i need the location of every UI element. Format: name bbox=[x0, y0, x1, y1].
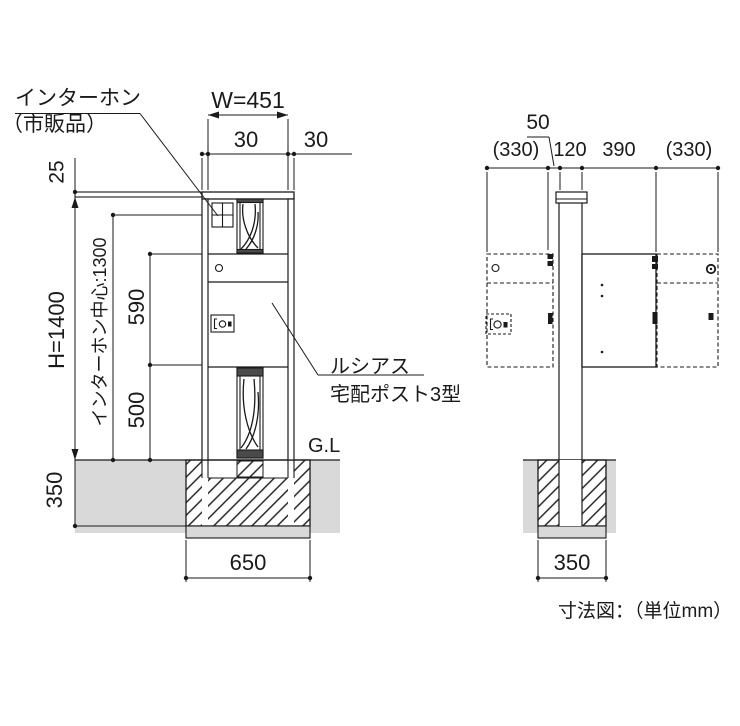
intercom-label-line2: （市販品） bbox=[2, 114, 107, 135]
front-lock-icon bbox=[211, 315, 234, 332]
drawing-caption: 寸法図：（単位mm） bbox=[558, 602, 732, 621]
front-knob-circle bbox=[216, 265, 223, 272]
front-top-rail bbox=[202, 192, 294, 199]
dim-intercom-center-label: インターホン中心:1300 bbox=[91, 237, 109, 426]
side-post bbox=[559, 203, 582, 526]
dim-590-label: 590 bbox=[126, 289, 148, 326]
product-label-line2: 宅配ポスト3型 bbox=[330, 383, 461, 407]
front-upper-panel bbox=[237, 199, 263, 253]
dim-500-label: 500 bbox=[126, 392, 148, 429]
dim-350-side-label: 350 bbox=[554, 552, 591, 574]
dim-390-label: 390 bbox=[602, 140, 635, 160]
dim-350-front-label: 350 bbox=[44, 472, 66, 509]
dim-120-label: 120 bbox=[553, 140, 586, 160]
front-crossbar bbox=[75, 192, 202, 197]
front-left-post bbox=[202, 199, 208, 460]
side-door-open-right bbox=[657, 254, 718, 367]
product-label-line1: ルシアス bbox=[330, 355, 461, 379]
dim-330-right-label: (330) bbox=[666, 140, 713, 160]
ground-level-label: G.L bbox=[308, 436, 340, 456]
dim-height-label: H=1400 bbox=[46, 291, 68, 369]
side-door-open-left bbox=[486, 254, 553, 367]
front-footing bbox=[186, 526, 310, 538]
front-intercom-box bbox=[212, 203, 233, 227]
dim-width-label: W=451 bbox=[211, 89, 285, 112]
intercom-label-line1: インターホン bbox=[15, 88, 141, 109]
front-lower-panel bbox=[237, 368, 263, 458]
dim-30-right-label: 30 bbox=[304, 129, 328, 151]
side-post-cap bbox=[556, 192, 587, 203]
side-footing bbox=[538, 526, 606, 538]
dim-50-label: 50 bbox=[526, 112, 549, 133]
dim-25-label: 25 bbox=[47, 160, 68, 183]
dim-650-label: 650 bbox=[230, 552, 267, 574]
product-label: ルシアス 宅配ポスト3型 bbox=[330, 355, 461, 407]
side-box-body bbox=[582, 254, 656, 367]
dim-30-left-label: 30 bbox=[234, 129, 258, 151]
dim-330-left-label: (330) bbox=[493, 140, 540, 160]
dimension-drawing-page: インターホン （市販品） W=451 30 30 25 H=1400 インターホ… bbox=[0, 0, 740, 726]
